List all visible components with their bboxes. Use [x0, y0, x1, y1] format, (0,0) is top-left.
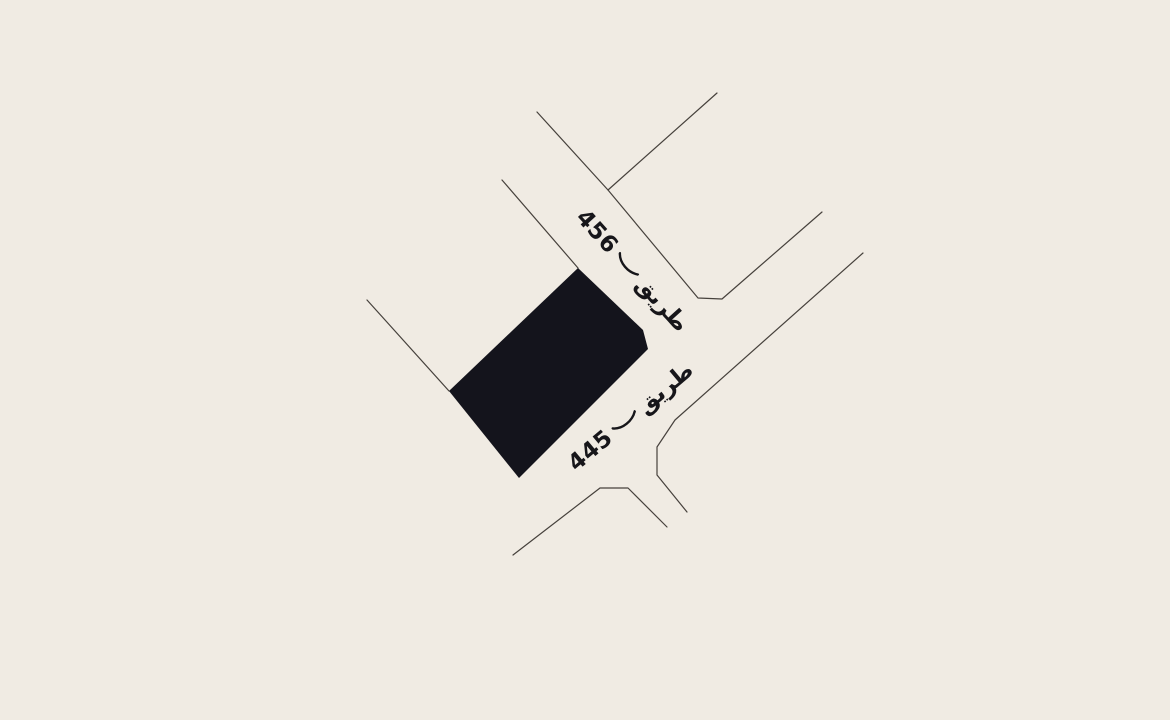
map-canvas	[0, 0, 1170, 720]
parcel-map[interactable]: 456 طريق 445 طريق	[0, 0, 1170, 720]
